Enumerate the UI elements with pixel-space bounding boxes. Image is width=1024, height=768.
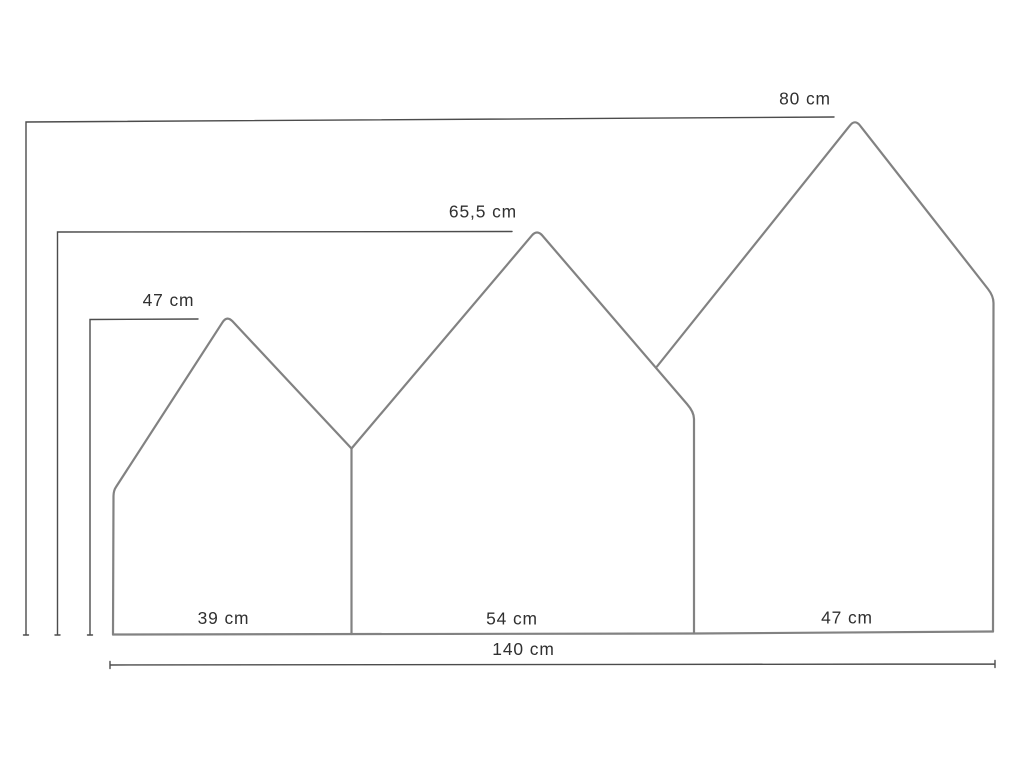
svg-text:47 cm: 47 cm — [821, 608, 873, 628]
svg-text:39 cm: 39 cm — [198, 608, 250, 628]
svg-text:140 cm: 140 cm — [492, 639, 554, 659]
svg-text:54 cm: 54 cm — [486, 609, 538, 629]
svg-text:65,5 cm: 65,5 cm — [449, 202, 517, 222]
svg-text:80 cm: 80 cm — [779, 89, 831, 109]
svg-text:47 cm: 47 cm — [143, 290, 195, 310]
